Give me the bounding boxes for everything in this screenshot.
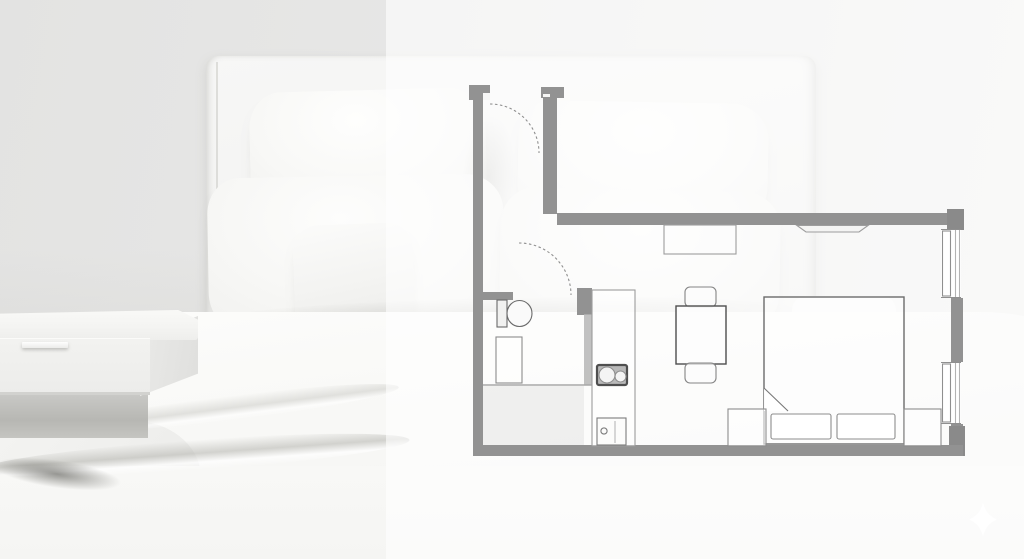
white-exposure-overlay (386, 0, 1024, 559)
bedroom-scene (0, 0, 1024, 559)
nightstand-left-top (0, 310, 198, 340)
nightstand-left-handle (22, 342, 68, 348)
nightstand-left-underspace (0, 394, 148, 438)
nightstand-left-drawer-gap (0, 392, 150, 395)
